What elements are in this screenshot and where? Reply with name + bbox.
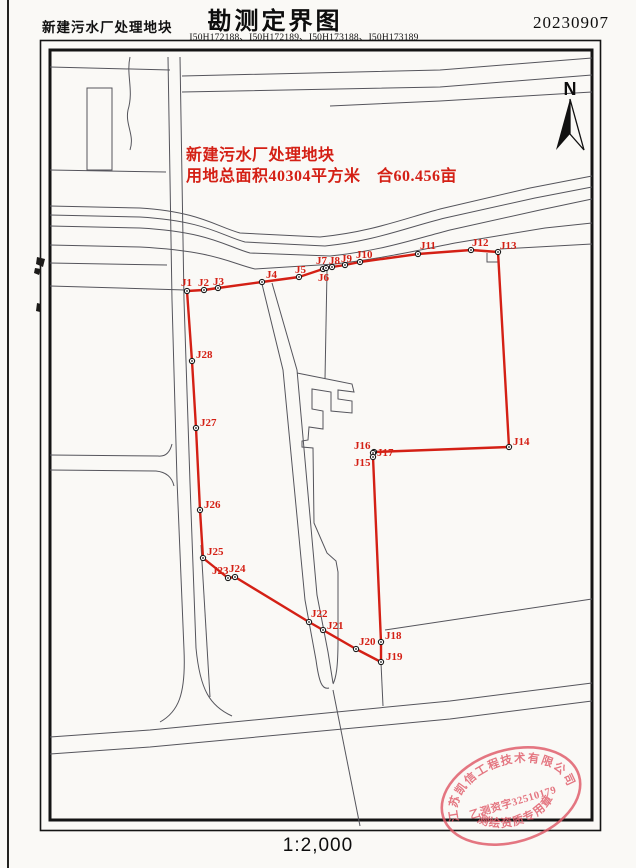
- boundary-point-dot: [355, 648, 357, 650]
- boundary-point-dot: [508, 446, 510, 448]
- north-arrow-left-half: [556, 99, 570, 150]
- boundary-point-label: J17: [377, 447, 394, 459]
- boundary-point-label: J3: [213, 276, 225, 288]
- boundary-point-dot: [322, 629, 324, 631]
- boundary-point-dot: [298, 276, 300, 278]
- boundary-point-label: J28: [196, 349, 213, 361]
- boundary-point-dot: [199, 509, 201, 511]
- north-arrow-right-half: [570, 99, 584, 150]
- scanned-survey-page: 新建污水厂处理地块 勘测定界图 I50H172188、I50H172189、I5…: [0, 0, 636, 868]
- parcel-annotation-line1: 新建污水厂处理地块: [186, 145, 335, 164]
- parcel-boundary-polygon: [187, 250, 509, 662]
- boundary-point-dot: [470, 249, 472, 251]
- boundary-point-dot: [234, 576, 236, 578]
- boundary-point-label: J19: [386, 651, 403, 663]
- boundary-layer: J1J2J3J4J5J6J7J8J9J10J11J12J13J14J17J16J…: [181, 237, 530, 665]
- scan-ink-marks: [34, 257, 45, 312]
- boundary-point-label: J12: [472, 237, 489, 249]
- boundary-point-label: J2: [198, 277, 210, 289]
- boundary-point-label: J18: [385, 630, 402, 642]
- boundary-point-dot: [202, 557, 204, 559]
- north-arrow-label: N: [564, 79, 577, 99]
- boundary-point-label: J21: [327, 620, 344, 632]
- boundary-point-dot: [186, 290, 188, 292]
- boundary-point-dot: [372, 452, 374, 454]
- boundary-point-dot: [417, 253, 419, 255]
- boundary-point-label: J9: [341, 253, 353, 265]
- boundary-point-dot: [227, 577, 229, 579]
- boundary-point-label: J23: [212, 565, 229, 577]
- parcel-annotation: 新建污水厂处理地块 用地总面积40304平方米 合60.456亩: [186, 145, 457, 185]
- boundary-point-label: J6: [318, 272, 330, 284]
- boundary-point-dot: [372, 456, 374, 458]
- boundary-point-dot: [497, 251, 499, 253]
- boundary-point-label: J27: [200, 417, 217, 429]
- north-arrow: N: [556, 79, 584, 150]
- boundary-point-dot: [191, 360, 193, 362]
- boundary-point-dot: [261, 281, 263, 283]
- parcel-annotation-line2: 用地总面积40304平方米 合60.456亩: [186, 166, 457, 185]
- boundary-point-label: J7: [316, 255, 328, 267]
- boundary-point-label: J4: [266, 269, 278, 281]
- boundary-point-label: J25: [207, 546, 224, 558]
- boundary-point-dot: [380, 641, 382, 643]
- boundary-point-label: J13: [500, 240, 517, 252]
- boundary-point-label: J16: [354, 440, 371, 452]
- boundary-point-label: J20: [359, 636, 376, 648]
- boundary-point-label: J5: [295, 264, 307, 276]
- boundary-point-dot: [359, 261, 361, 263]
- boundary-point-label: J26: [204, 499, 221, 511]
- boundary-point-label: J11: [420, 240, 436, 252]
- survey-map-canvas: 新建污水厂处理地块 用地总面积40304平方米 合60.456亩 J1J2J3J…: [0, 0, 636, 868]
- boundary-point-dot: [203, 289, 205, 291]
- boundary-point-dot: [380, 661, 382, 663]
- boundary-point-label: J8: [329, 255, 341, 267]
- boundary-point-label: J1: [181, 277, 192, 289]
- map-scale: 1:2,000: [0, 835, 636, 857]
- boundary-point-label: J15: [354, 457, 371, 469]
- boundary-point-label: J14: [513, 436, 530, 448]
- boundary-point-dot: [325, 267, 327, 269]
- boundary-point-label: J24: [229, 563, 246, 575]
- boundary-point-label: J10: [356, 249, 373, 261]
- boundary-point-dot: [308, 621, 310, 623]
- boundary-point-dot: [195, 427, 197, 429]
- boundary-point-label: J22: [311, 608, 328, 620]
